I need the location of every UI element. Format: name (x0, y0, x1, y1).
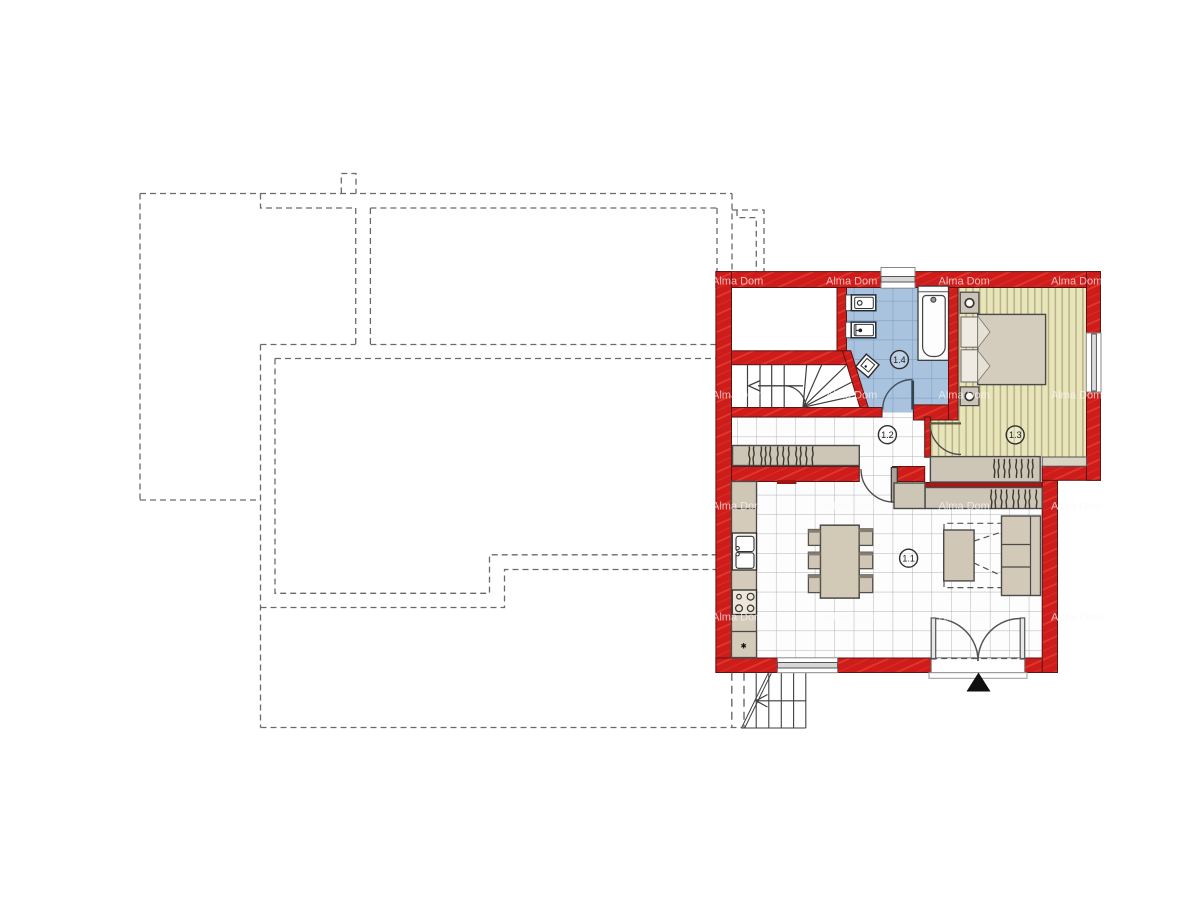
svg-text:Alma Dom: Alma Dom (1051, 612, 1102, 624)
svg-text:Alma Dom: Alma Dom (1051, 276, 1102, 288)
svg-text:Alma Dom: Alma Dom (826, 612, 877, 624)
svg-text:Alma Dom: Alma Dom (939, 612, 990, 624)
svg-text:1.3: 1.3 (1009, 430, 1022, 440)
svg-text:Alma Dom: Alma Dom (826, 390, 877, 402)
svg-text:1.4: 1.4 (893, 355, 906, 365)
svg-text:Alma Dom: Alma Dom (939, 390, 990, 402)
svg-text:Alma Dom: Alma Dom (939, 501, 990, 513)
svg-text:Alma Dom: Alma Dom (826, 276, 877, 288)
svg-text:Alma Dom: Alma Dom (712, 390, 763, 402)
svg-text:Alma Dom: Alma Dom (939, 276, 990, 288)
svg-text:✱: ✱ (741, 642, 748, 651)
svg-text:Alma Dom: Alma Dom (826, 501, 877, 513)
svg-text:Alma Dom: Alma Dom (1051, 501, 1102, 513)
svg-text:Alma Dom: Alma Dom (712, 276, 763, 288)
svg-text:Alma Dom: Alma Dom (712, 612, 763, 624)
svg-text:1.2: 1.2 (881, 430, 894, 440)
svg-text:Alma Dom: Alma Dom (712, 501, 763, 513)
svg-text:1.1: 1.1 (902, 553, 915, 563)
svg-text:Alma Dom: Alma Dom (1051, 390, 1102, 402)
